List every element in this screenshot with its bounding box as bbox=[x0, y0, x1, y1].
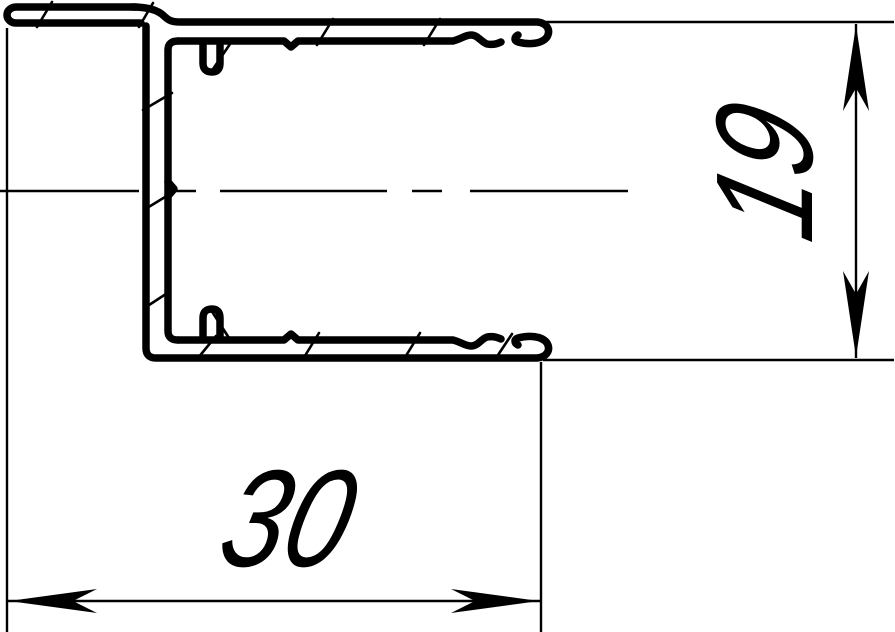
drawing-canvas: 30 19 bbox=[0, 0, 895, 632]
profile-top-flange-inner bbox=[178, 35, 501, 47]
profile-bottom-lip bbox=[203, 309, 220, 338]
width-dimension-value: 30 bbox=[207, 443, 371, 597]
profile-outline bbox=[7, 7, 549, 358]
profile-top-leg bbox=[7, 7, 141, 23]
height-dimension-value: 19 bbox=[689, 88, 843, 252]
hatch-ticks bbox=[37, 2, 512, 359]
height-dimension: 19 bbox=[689, 24, 869, 358]
profile-top-lip bbox=[203, 43, 220, 72]
width-dimension: 30 bbox=[7, 443, 541, 613]
profile-cross-section-drawing: 30 19 bbox=[0, 0, 895, 632]
